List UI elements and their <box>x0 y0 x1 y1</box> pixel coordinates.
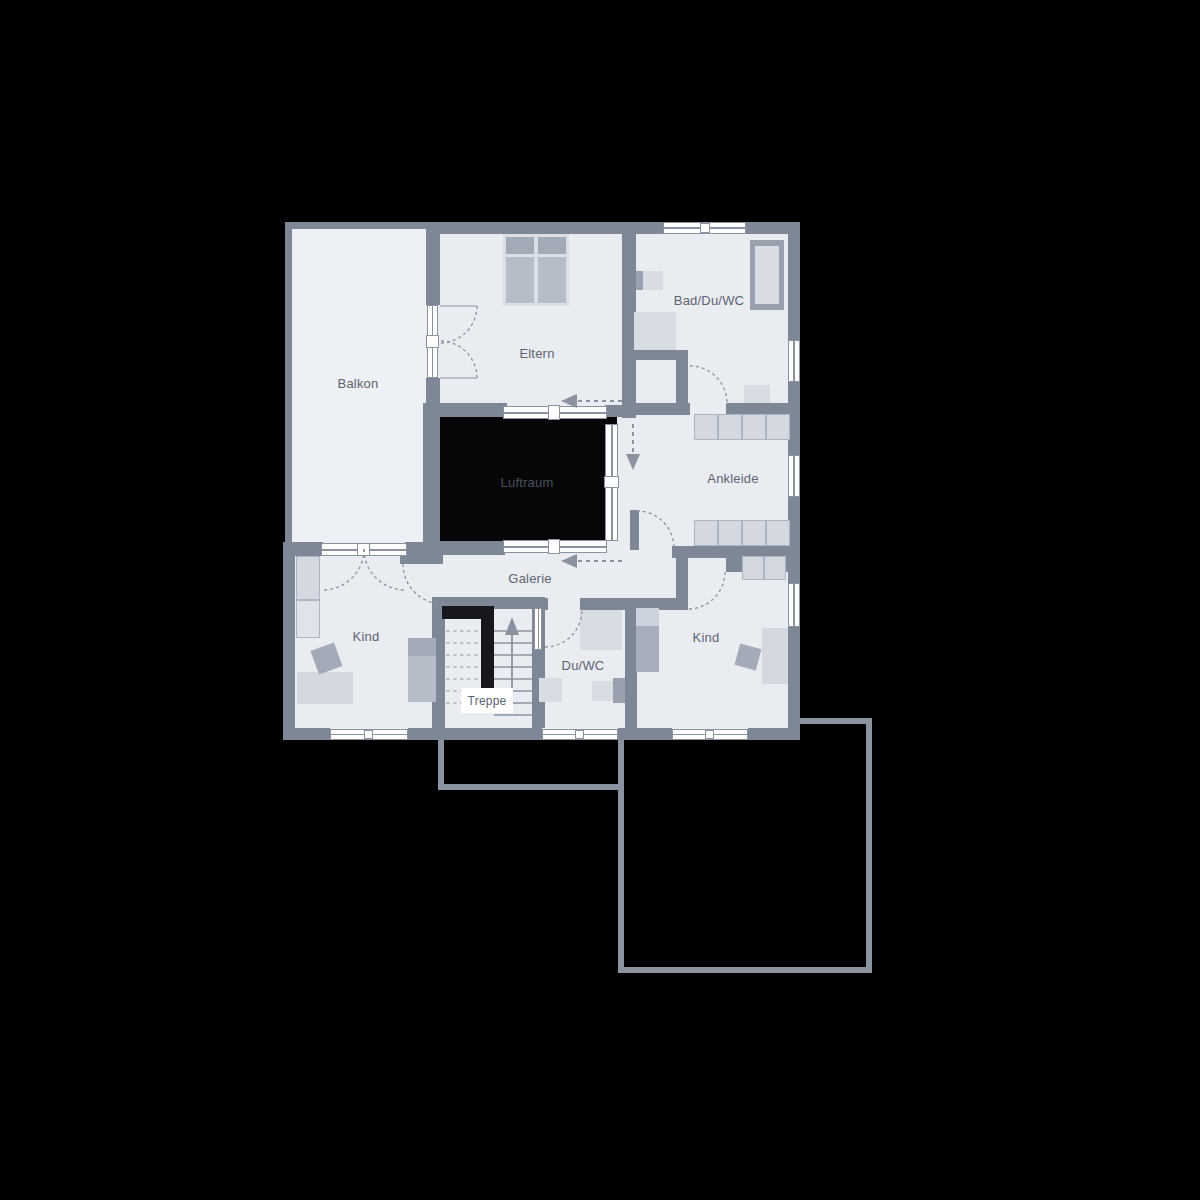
view-arrow-bottom-head <box>561 554 577 568</box>
room-label-treppe: Treppe <box>468 695 507 707</box>
door-arc-kind2-entry <box>688 572 725 609</box>
room-label-luftraum: Luftraum <box>501 476 554 489</box>
view-arrow-right-head <box>626 454 640 470</box>
room-label-kind-links: Kind <box>353 630 380 643</box>
room-label-ankleide: Ankleide <box>707 472 758 485</box>
room-label-duwc: Du/WC <box>562 659 605 672</box>
room-label-eltern: Eltern <box>519 347 554 360</box>
door-arc-kind1-entry <box>403 564 443 604</box>
floor-plan-canvas: Balkon Eltern Bad/Du/WC Luftraum Ankleid… <box>0 0 1200 1200</box>
room-label-balkon: Balkon <box>338 377 379 390</box>
door-arc-bad <box>690 366 727 403</box>
room-label-galerie: Galerie <box>508 572 551 585</box>
door-arc-duwc <box>545 610 582 647</box>
room-label-kind-rechts: Kind <box>693 631 720 644</box>
door-arc-ankleide <box>637 511 674 548</box>
stairs-up-arrow-head <box>505 617 519 635</box>
room-label-bad: Bad/Du/WC <box>674 294 744 307</box>
annotation-overlay <box>0 0 1200 1200</box>
door-arc-eltern-balcony-upper <box>440 306 477 343</box>
door-arc-french-left <box>323 549 364 590</box>
view-arrow-top-head <box>561 394 577 408</box>
door-arc-eltern-balcony-lower <box>440 341 477 378</box>
door-arc-french-right <box>364 549 405 590</box>
